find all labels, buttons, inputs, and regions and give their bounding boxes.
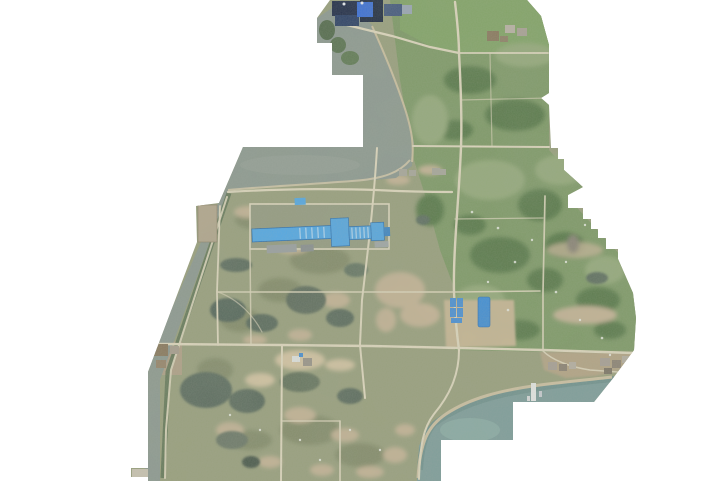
surveyed-area: [0, 0, 723, 481]
orthophoto-map: [0, 0, 723, 481]
orthophoto-canvas: [0, 0, 723, 481]
grain-overlay: [0, 0, 723, 481]
